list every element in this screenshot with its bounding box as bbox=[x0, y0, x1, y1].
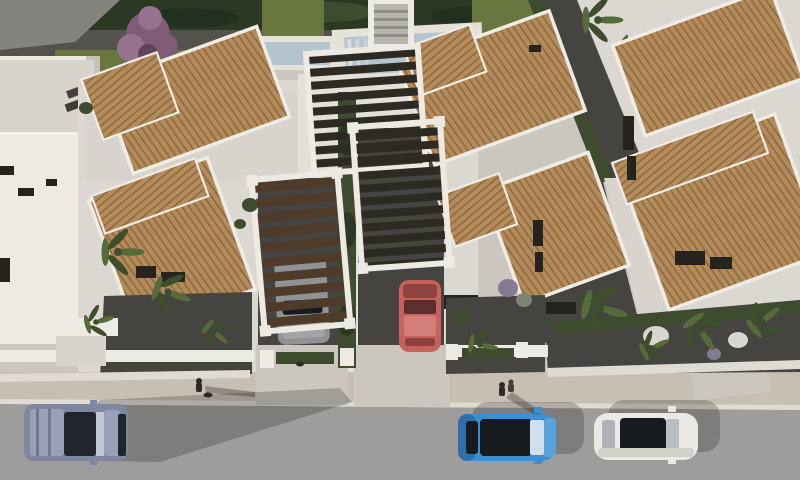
pergola-post bbox=[357, 262, 369, 274]
blue-hatchback bbox=[458, 407, 556, 464]
pedestrian-body bbox=[499, 387, 505, 396]
red-car-in-driveway bbox=[399, 280, 441, 352]
wall-pillar bbox=[260, 350, 274, 368]
round-bush bbox=[498, 279, 518, 297]
mirror bbox=[90, 460, 97, 465]
pergola-post bbox=[344, 318, 356, 330]
render-canvas bbox=[0, 0, 800, 480]
small-dog bbox=[296, 362, 304, 367]
mirror bbox=[534, 458, 542, 464]
mirror bbox=[90, 400, 97, 405]
pedestrian-body bbox=[508, 384, 514, 392]
pergola-post bbox=[347, 122, 359, 134]
white-sedan bbox=[594, 406, 698, 464]
bush bbox=[234, 219, 246, 229]
lawn-center bbox=[262, 0, 324, 40]
entry-steps bbox=[56, 336, 106, 366]
pergola-post bbox=[246, 175, 258, 187]
flower-bush-white bbox=[728, 332, 748, 348]
aerial-villa-render bbox=[0, 0, 800, 480]
bush bbox=[242, 198, 258, 212]
roof-stair-structure bbox=[368, 0, 414, 48]
wall-pillar bbox=[446, 344, 458, 360]
gray-blue-suv bbox=[24, 400, 128, 465]
pedestrian-body bbox=[196, 383, 202, 392]
pergola-post bbox=[331, 167, 343, 179]
wall-pillar bbox=[340, 348, 354, 366]
pergola-post bbox=[443, 256, 455, 268]
wall-pillar bbox=[516, 342, 528, 358]
garden-gravel-left bbox=[100, 292, 252, 378]
bush bbox=[453, 307, 471, 323]
right-carport-pergola bbox=[347, 116, 455, 274]
mirror bbox=[668, 458, 676, 464]
wall-hedge bbox=[276, 352, 334, 364]
pergola-post bbox=[259, 325, 271, 337]
pedestrian bbox=[508, 379, 513, 384]
apron-right bbox=[354, 345, 450, 407]
mirror bbox=[534, 407, 542, 413]
bush bbox=[79, 102, 93, 114]
pergola-post bbox=[434, 116, 446, 128]
round-bush bbox=[516, 293, 532, 307]
left-carport-pergola bbox=[246, 167, 356, 337]
flower-bush-purple bbox=[707, 348, 721, 360]
low-white-wall bbox=[0, 350, 254, 362]
garden-gravel-center bbox=[446, 295, 545, 374]
mirror bbox=[668, 406, 676, 412]
